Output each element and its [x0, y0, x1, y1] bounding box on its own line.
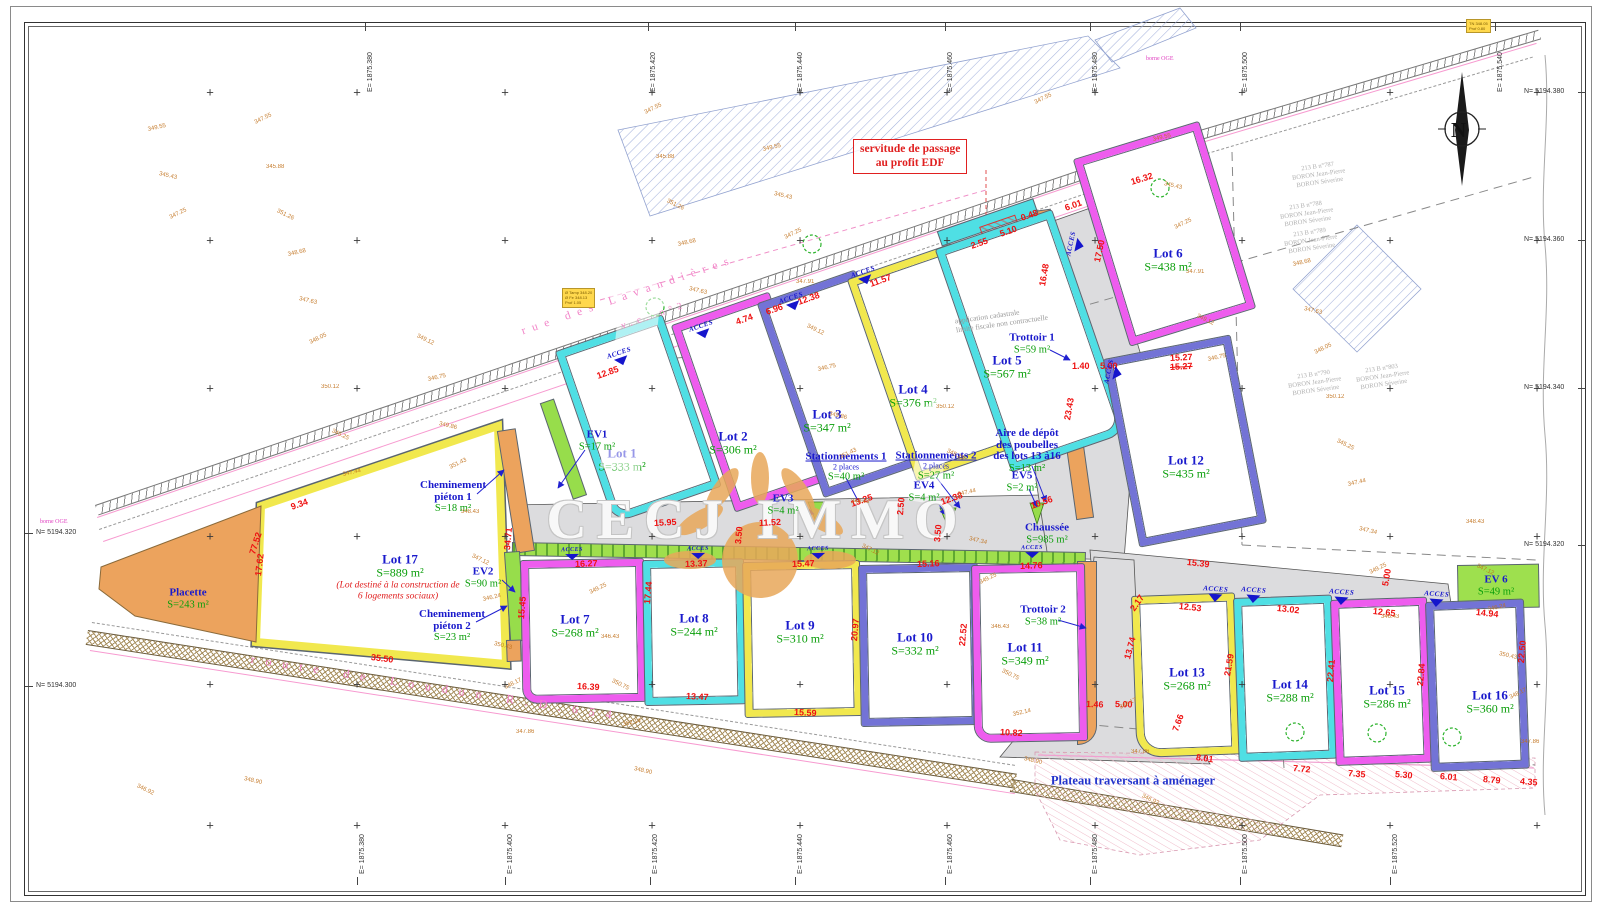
- grid-cross: +: [648, 818, 656, 833]
- spot-elevation: 346.43: [1381, 614, 1399, 620]
- spot-elevation: 345.88: [266, 164, 284, 170]
- grid-tick-bottom: [357, 877, 358, 885]
- feature-sub: 2 places: [896, 462, 977, 470]
- dimension-label: 15.95: [654, 517, 677, 528]
- grid-label-top: E= 1875.540: [1497, 52, 1504, 92]
- grid-label-top: E= 1875.460: [947, 52, 954, 92]
- grid-cross: +: [1386, 818, 1394, 833]
- grid-cross: +: [353, 85, 361, 100]
- dimension-label: 22.84: [1415, 663, 1427, 686]
- grid-label-top: E= 1875.420: [650, 52, 657, 92]
- grid-cross: +: [353, 818, 361, 833]
- feature-area: S=985 m²: [1025, 534, 1069, 545]
- grid-label-right: N= 5194.320: [1524, 541, 1564, 548]
- feature-name: EV3: [768, 494, 799, 506]
- grid-cross: +: [943, 529, 951, 544]
- feature-area: S=38 m²: [1020, 616, 1066, 627]
- grid-tick-bottom: [1390, 877, 1391, 885]
- grid-tick-left: [25, 533, 33, 534]
- servitude-note-box: servitude de passage au profit EDF: [853, 139, 967, 174]
- grid-cross: +: [943, 677, 951, 692]
- grid-cross: +: [353, 233, 361, 248]
- spot-elevation: 346.43: [601, 634, 619, 640]
- feature-label-trottoir-1: Trottoir 1S=59 m²: [1009, 333, 1055, 356]
- acces-text: ACCES: [550, 547, 594, 554]
- grid-label-top: E= 1875.480: [1092, 52, 1099, 92]
- dimension-label: 13.47: [686, 691, 709, 702]
- borne-oge-label: borne OGE: [40, 519, 68, 525]
- grid-cross: +: [206, 818, 214, 833]
- feature-area: S=13 m²: [993, 463, 1061, 474]
- grid-label-bottom: E= 1875.420: [652, 834, 659, 874]
- grid-cross: +: [648, 233, 656, 248]
- grid-cross: +: [501, 677, 509, 692]
- feature-name: Chaussée: [1025, 523, 1069, 535]
- feature-name: Trottoir 2: [1020, 605, 1066, 617]
- grid-cross: +: [206, 233, 214, 248]
- spot-elevation: 346.43: [991, 624, 1009, 630]
- feature-label-chaussée: ChausséeS=985 m²: [1025, 523, 1069, 546]
- grid-cross: +: [1386, 85, 1394, 100]
- site-plan-sheet: Lot 1S=333 m²Lot 2S=306 m²Lot 3S=347 m²L…: [0, 0, 1600, 908]
- feature-name: EV1: [579, 430, 615, 442]
- spot-elevation: 347.91: [796, 279, 814, 285]
- spot-elevation: 350.12: [936, 404, 954, 410]
- grid-tick-bottom: [795, 877, 796, 885]
- grid-tick-right: [1578, 92, 1586, 93]
- dimension-label: 15.59: [794, 707, 817, 718]
- feature-name: Cheminement: [419, 609, 485, 621]
- manhole-l3: Prof 1.05: [565, 300, 581, 305]
- grid-label-top: E= 1875.440: [797, 52, 804, 92]
- grid-tick-bottom: [1240, 877, 1241, 885]
- acces-arrow-icon: [565, 554, 579, 560]
- acces-arrow-icon: [1334, 596, 1349, 605]
- grid-cross: +: [1091, 818, 1099, 833]
- acces-arrow-icon: [811, 553, 825, 559]
- grid-label-bottom: E= 1875.380: [359, 834, 366, 874]
- feature-area: S=23 m²: [419, 632, 485, 643]
- spot-elevation: 347.86: [516, 729, 534, 735]
- grid-cross: +: [206, 677, 214, 692]
- dimension-label: 2.50: [895, 497, 906, 515]
- dimension-label: 4.35: [1520, 776, 1538, 787]
- grid-label-bottom: E= 1875.500: [1242, 834, 1249, 874]
- acces-marker: ACCES: [1319, 587, 1364, 606]
- grid-label-top: E= 1875.380: [367, 52, 374, 92]
- acces-arrow-icon: [691, 553, 705, 559]
- grid-cross: +: [1238, 529, 1246, 544]
- grid-cross: +: [1386, 233, 1394, 248]
- grid-cross: +: [206, 85, 214, 100]
- tree-circle-icon: [1286, 723, 1304, 741]
- dimension-label: 11.52: [759, 517, 782, 528]
- grid-cross: +: [796, 818, 804, 833]
- dimension-label: 15.27: [1170, 361, 1193, 372]
- acces-arrow-icon: [1246, 594, 1261, 603]
- plateau-note: Plateau traversant à aménager: [1051, 774, 1215, 789]
- leader-arrow: [502, 580, 515, 592]
- grid-cross: +: [1533, 818, 1541, 833]
- acces-text: ACCES: [676, 546, 720, 553]
- borne-oge-label: borne OGE: [1146, 56, 1174, 62]
- acces-marker: ACCES: [1231, 585, 1276, 604]
- spot-elevation: 347.86: [1131, 749, 1149, 755]
- grid-cross: +: [943, 818, 951, 833]
- servitude-line1: servitude de passage: [860, 143, 960, 155]
- grid-tick-bottom: [1090, 877, 1091, 885]
- grid-tick-right: [1578, 388, 1586, 389]
- grid-cross: +: [1091, 233, 1099, 248]
- spot-elevation: 347.91: [1186, 269, 1204, 275]
- grid-tick-bottom: [505, 877, 506, 885]
- grid-tick-right: [1578, 545, 1586, 546]
- feature-area: S=40 m²: [806, 471, 887, 482]
- feature-sub: 2 places: [806, 463, 887, 471]
- grid-tick-top: [648, 23, 649, 31]
- grid-cross: +: [796, 381, 804, 396]
- feature-name: EV2: [465, 567, 501, 579]
- dimension-label: 20.97: [849, 618, 861, 641]
- feature-name: Cheminement: [420, 480, 486, 492]
- feature-label-ev1: EV1S=17 m²: [579, 430, 615, 453]
- grid-tick-top: [945, 23, 946, 31]
- grid-cross: +: [1238, 233, 1246, 248]
- grid-tick-top: [1495, 23, 1496, 31]
- dimension-label: 14.76: [1020, 560, 1043, 571]
- acces-arrow-icon: [1208, 593, 1223, 602]
- dimension-label: 22.50: [1516, 640, 1528, 663]
- feature-label-ev5: EV5S=2 m²: [1007, 471, 1038, 494]
- grid-label-bottom: E= 1875.440: [797, 834, 804, 874]
- acces-text: ACCES: [796, 546, 840, 553]
- feature-label-placette: PlacetteS=243 m²: [167, 588, 208, 611]
- tn-note-box: TN 348.05 Prof 0.80: [1466, 19, 1491, 33]
- grid-label-bottom: E= 1875.520: [1392, 834, 1399, 874]
- grid-tick-left: [25, 686, 33, 687]
- grid-cross: +: [1238, 677, 1246, 692]
- grid-label-left: N= 5194.300: [36, 682, 76, 689]
- dimension-label: 16.39: [577, 681, 600, 692]
- grid-cross: +: [501, 381, 509, 396]
- grid-cross: +: [501, 85, 509, 100]
- feature-area: S=49 m²: [1478, 586, 1514, 597]
- feature-area: S=90 m²: [465, 578, 501, 589]
- tree-circle-icon: [1368, 724, 1386, 742]
- grid-cross: +: [943, 233, 951, 248]
- grid-cross: +: [648, 381, 656, 396]
- grid-cross: +: [1091, 381, 1099, 396]
- grid-cross: +: [943, 381, 951, 396]
- feature-label-aire-de-dépôt: Aire de dépôtdes poubellesdes lots 13 à1…: [993, 428, 1061, 474]
- dimension-label: 8.79: [1483, 774, 1501, 785]
- dimension-label: 5.30: [1395, 769, 1413, 780]
- grid-label-right: N= 5194.380: [1524, 88, 1564, 95]
- tree-circle-icon: [803, 235, 821, 253]
- grid-label-top: E= 1875.500: [1242, 52, 1249, 92]
- grid-cross: +: [353, 529, 361, 544]
- feature-area: S=17 m²: [579, 441, 615, 452]
- grid-label-bottom: E= 1875.460: [947, 834, 954, 874]
- grid-cross: +: [1533, 677, 1541, 692]
- grid-cross: +: [796, 677, 804, 692]
- spot-elevation: 348.43: [461, 509, 479, 515]
- dimension-label: 7.72: [1293, 763, 1311, 774]
- grid-tick-right: [1578, 240, 1586, 241]
- dimension-label: 15.47: [792, 558, 815, 569]
- spot-elevation: 347.86: [1521, 739, 1539, 745]
- acces-marker: ACCES: [676, 546, 720, 560]
- feature-name: Aire de dépôt: [993, 428, 1061, 440]
- grid-cross: +: [648, 677, 656, 692]
- acces-marker: ACCES: [1010, 545, 1054, 559]
- spot-elevation: 348.43: [851, 499, 869, 505]
- dimension-label: 3.50: [932, 524, 943, 542]
- spot-elevation: 350.12: [1326, 394, 1344, 400]
- feature-label-ev2: EV2S=90 m²: [465, 567, 501, 590]
- feature-name: piéton 1: [420, 491, 486, 503]
- dimension-label: 22.52: [957, 623, 969, 646]
- grid-cross: +: [796, 233, 804, 248]
- dimension-label: 13.37: [685, 558, 708, 569]
- feature-label-trottoir-2: Trottoir 2S=38 m²: [1020, 605, 1066, 628]
- spot-elevation: 345.88: [656, 154, 674, 160]
- grid-cross: +: [796, 529, 804, 544]
- dimension-label: 6.01: [1440, 771, 1458, 782]
- grid-cross: +: [648, 529, 656, 544]
- grid-cross: +: [1238, 381, 1246, 396]
- feature-name: Placette: [167, 588, 208, 600]
- acces-arrow-icon: [1429, 598, 1444, 607]
- feature-area: S=27 m²: [896, 470, 977, 481]
- grid-tick-top: [1240, 23, 1241, 31]
- acces-text: ACCES: [1010, 545, 1054, 552]
- dimension-label: 1.46: [1086, 699, 1104, 710]
- acces-arrow-icon: [1025, 552, 1039, 558]
- grid-label-bottom: E= 1875.400: [507, 834, 514, 874]
- feature-area: S=59 m²: [1009, 344, 1055, 355]
- feature-label-cheminement: Cheminementpiéton 2S=23 m²: [419, 609, 485, 643]
- dimension-label: 17.44: [642, 581, 654, 604]
- dimension-label: 10.82: [1000, 727, 1023, 738]
- grid-label-right: N= 5194.340: [1524, 384, 1564, 391]
- grid-label-left: N= 5194.320: [36, 529, 76, 536]
- acces-marker: ACCES: [550, 547, 594, 561]
- manhole-note-box: Ø Tamp 348.20 Ø Fe 348.13 Prof 1.05: [562, 288, 595, 308]
- grid-cross: +: [206, 381, 214, 396]
- grid-tick-top: [795, 23, 796, 31]
- feature-label-ev3: EV3S=4 m²: [768, 494, 799, 517]
- acces-marker: ACCES: [1414, 589, 1459, 608]
- feature-name: Trottoir 1: [1009, 333, 1055, 345]
- feature-label-ev-6: EV 6S=49 m²: [1478, 575, 1514, 598]
- grid-cross: +: [501, 818, 509, 833]
- dimension-label: 15.45: [516, 596, 528, 619]
- dimension-label: 7.35: [1348, 768, 1366, 779]
- grid-label-bottom: E= 1875.480: [1092, 834, 1099, 874]
- spot-elevation: 348.43: [1466, 519, 1484, 525]
- grid-tick-top: [365, 23, 366, 31]
- feature-area: S=2 m²: [1007, 482, 1038, 493]
- north-arrow: N: [1438, 72, 1486, 186]
- grid-cross: +: [1386, 381, 1394, 396]
- feature-name: piéton 2: [419, 620, 485, 632]
- grid-cross: +: [1091, 529, 1099, 544]
- servitude-line2: au profit EDF: [876, 157, 945, 169]
- grid-cross: +: [501, 529, 509, 544]
- feature-label-ev4: EV4S=4 m²: [909, 481, 940, 504]
- dimension-label: 22.41: [1325, 659, 1337, 682]
- grid-tick-bottom: [650, 877, 651, 885]
- feature-name: des lots 13 à16: [993, 451, 1061, 463]
- feature-area: S=4 m²: [909, 492, 940, 503]
- spot-elevation: 350.12: [321, 384, 339, 390]
- dimension-label: 3.50: [733, 526, 744, 544]
- grid-cross: +: [501, 233, 509, 248]
- acces-marker: ACCES: [796, 546, 840, 560]
- north-letter: N: [1451, 118, 1466, 142]
- grid-cross: +: [353, 381, 361, 396]
- grid-cross: +: [1238, 818, 1246, 833]
- dimension-label: 1.40: [1072, 361, 1090, 371]
- grid-tick-bottom: [945, 877, 946, 885]
- tn-l2: Prof 0.80: [1469, 26, 1485, 31]
- feature-area: S=243 m²: [167, 599, 208, 610]
- leader-arrow: [558, 450, 585, 488]
- grid-cross: +: [1091, 677, 1099, 692]
- grid-cross: +: [1386, 529, 1394, 544]
- feature-name: EV4: [909, 481, 940, 493]
- grid-label-right: N= 5194.360: [1524, 236, 1564, 243]
- tree-circle-icon: [1443, 728, 1461, 746]
- grid-cross: +: [1386, 677, 1394, 692]
- feature-name: EV 6: [1478, 575, 1514, 587]
- dimension-label: 15.16: [917, 558, 940, 569]
- feature-area: S=4 m²: [768, 505, 799, 516]
- grid-tick-top: [1090, 23, 1091, 31]
- grid-cross: +: [206, 529, 214, 544]
